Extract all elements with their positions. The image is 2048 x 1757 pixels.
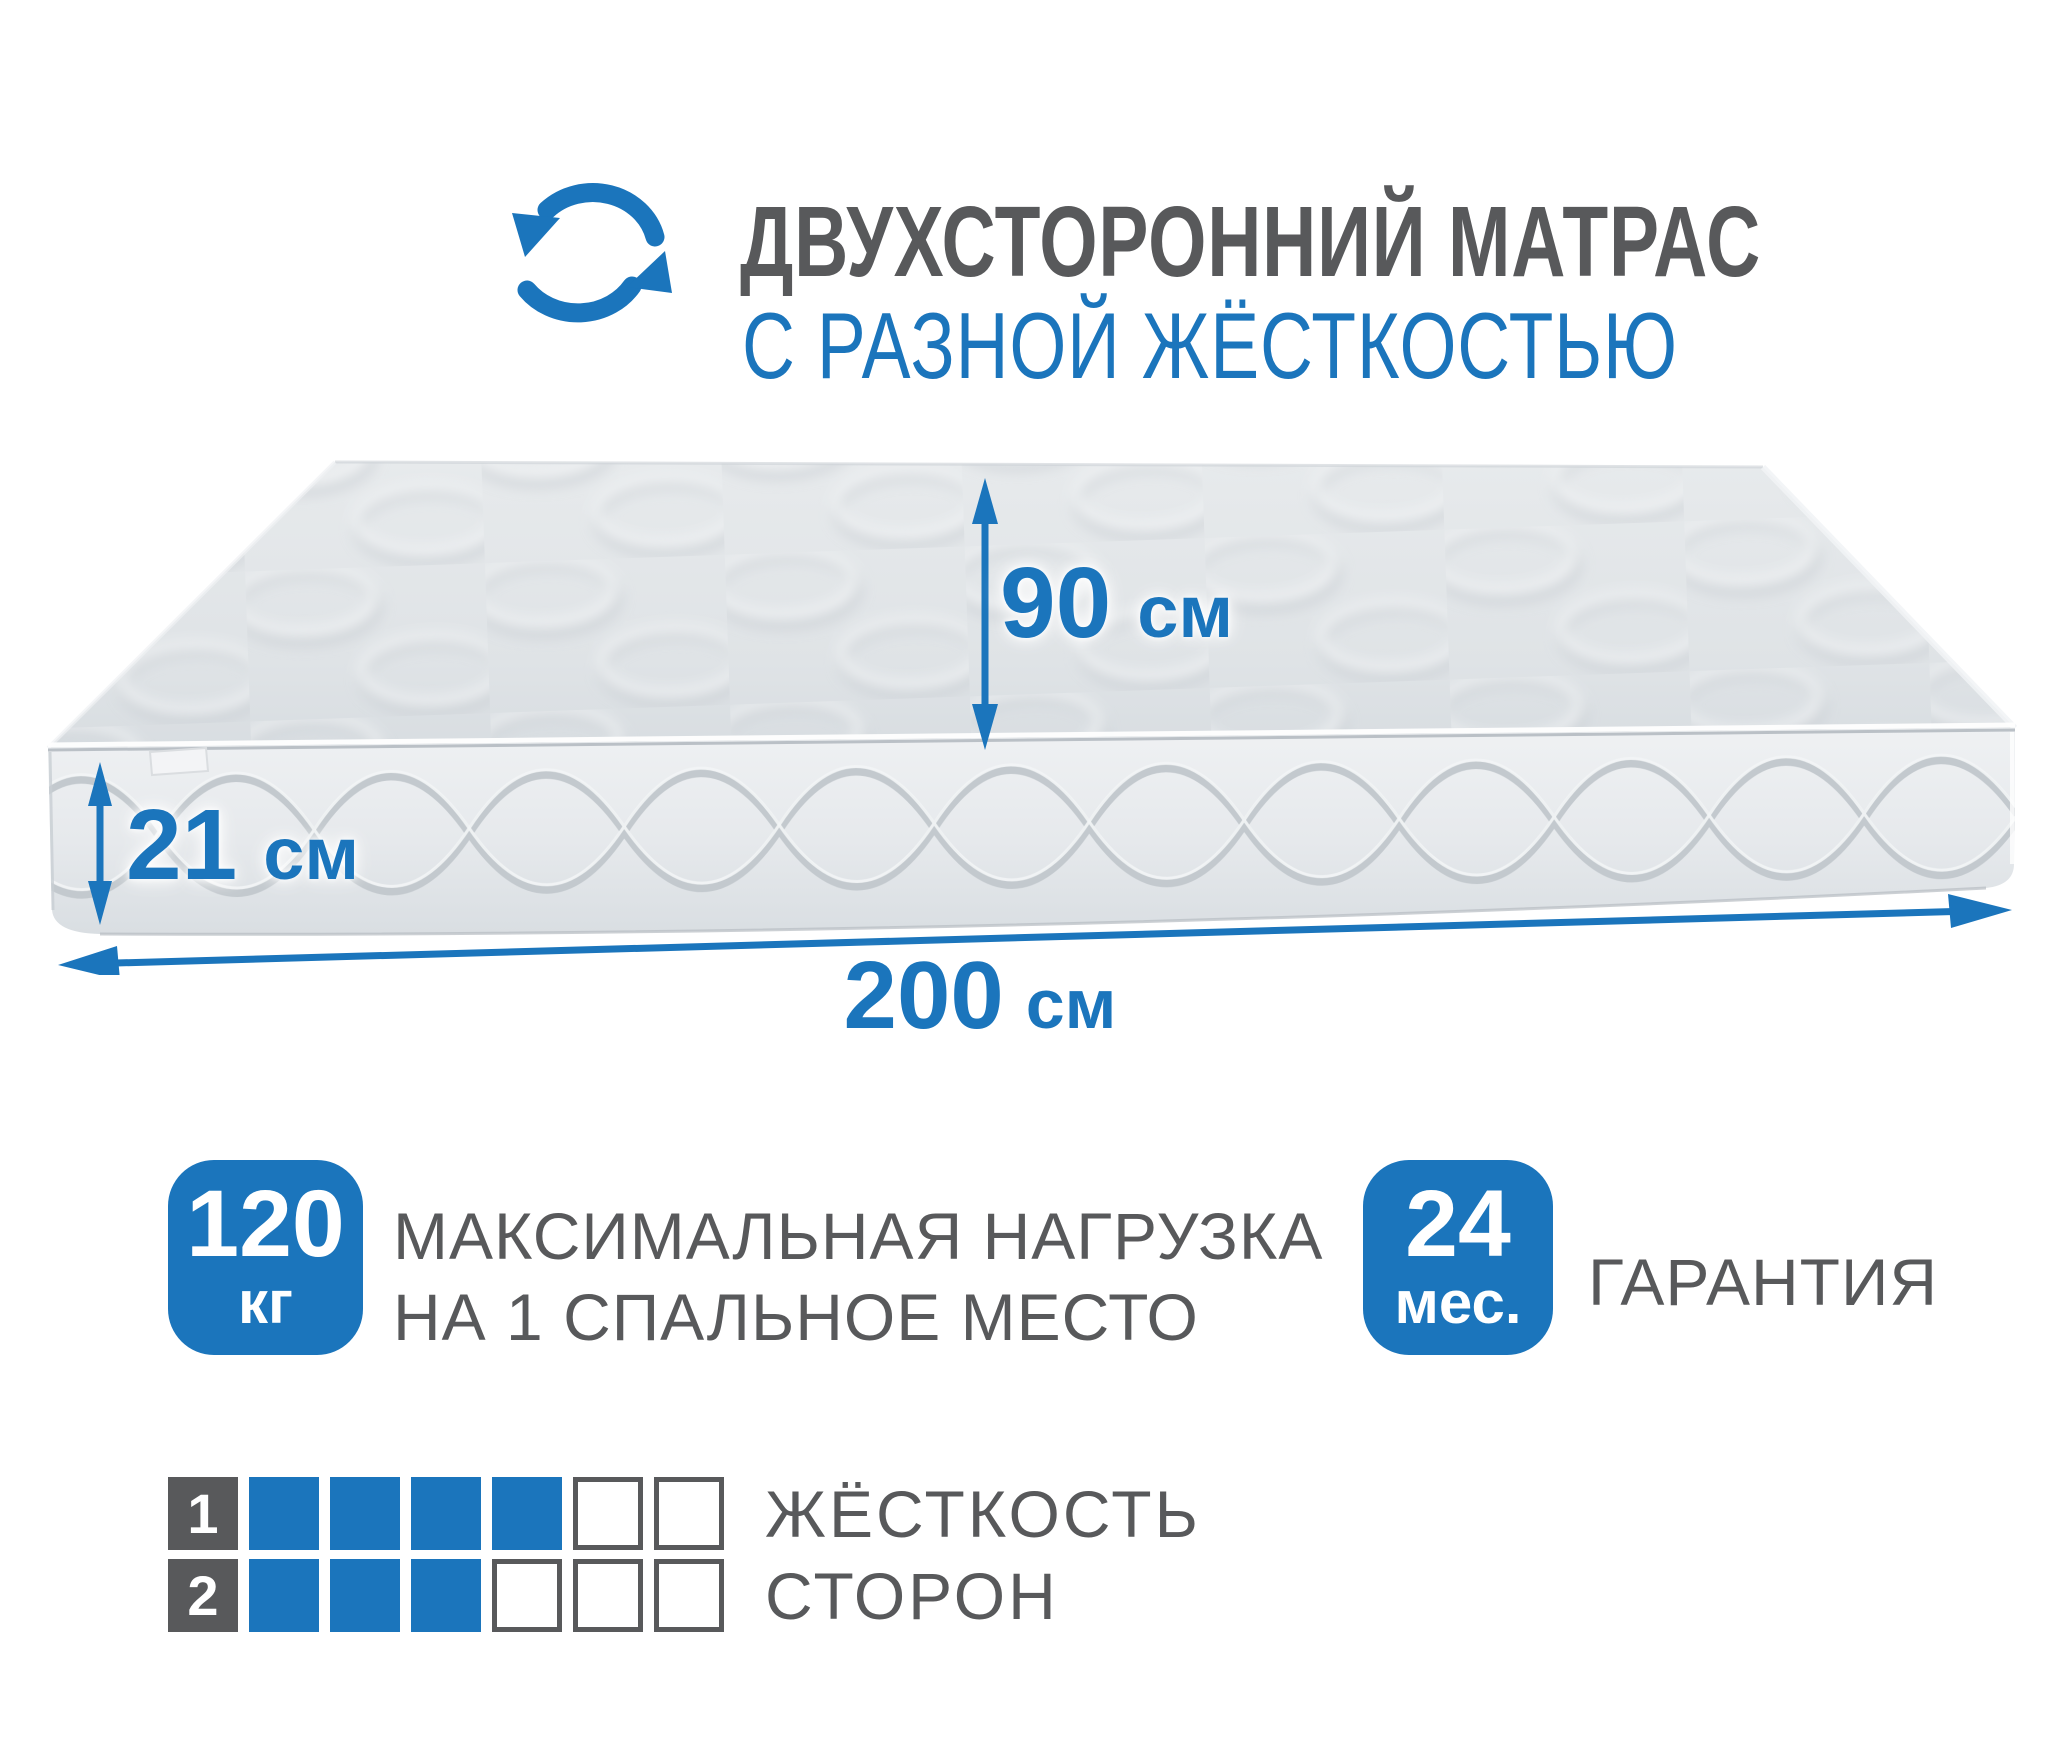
firmness-grid: 12 — [168, 1477, 724, 1641]
max-load-unit: кг — [238, 1270, 293, 1336]
dimension-width-value: 90 — [1000, 547, 1111, 659]
mattress-infographic: ДВУХСТОРОННИЙ МАТРАС С РАЗНОЙ ЖЁСТКОСТЬЮ — [0, 0, 2048, 1757]
max-load-caption-line2: НА 1 СПАЛЬНОЕ МЕСТО — [393, 1277, 1323, 1358]
firmness-cell-empty — [573, 1559, 643, 1632]
firmness-side-number: 1 — [168, 1477, 238, 1550]
firmness-cell-filled — [330, 1477, 400, 1550]
firmness-cell-empty — [492, 1559, 562, 1632]
max-load-badge: 120 кг — [168, 1160, 363, 1355]
firmness-cell-filled — [249, 1477, 319, 1550]
firmness-row-side-1: 1 — [168, 1477, 724, 1550]
dimension-length-value: 200 — [844, 942, 1004, 1049]
mattress-tag — [150, 748, 208, 775]
firmness-title-line1: ЖЁСТКОСТЬ — [765, 1477, 1201, 1550]
dimension-height-unit: см — [263, 812, 359, 895]
dimension-height-value: 21 — [126, 789, 237, 901]
firmness-cell-filled — [492, 1477, 562, 1550]
warranty-badge: 24 мес. — [1363, 1160, 1553, 1355]
max-load-value: 120 — [186, 1179, 345, 1269]
firmness-cell-filled — [330, 1559, 400, 1632]
firmness-cell-empty — [654, 1477, 724, 1550]
firmness-cell-empty — [654, 1559, 724, 1632]
warranty-caption: ГАРАНТИЯ — [1588, 1247, 1938, 1317]
dimension-width-label: 90см — [1000, 553, 1233, 653]
max-load-caption: МАКСИМАЛЬНАЯ НАГРУЗКА НА 1 СПАЛЬНОЕ МЕСТ… — [393, 1196, 1323, 1358]
firmness-cell-filled — [411, 1477, 481, 1550]
firmness-cell-filled — [249, 1559, 319, 1632]
rotate-arrows-icon — [505, 180, 675, 330]
dimension-height-label: 21см — [126, 795, 359, 895]
firmness-cell-filled — [411, 1559, 481, 1632]
page-title: ДВУХСТОРОННИЙ МАТРАС — [740, 192, 1761, 292]
firmness-side-number: 2 — [168, 1559, 238, 1632]
max-load-caption-line1: МАКСИМАЛЬНАЯ НАГРУЗКА — [393, 1196, 1323, 1277]
warranty-value: 24 — [1405, 1179, 1511, 1269]
firmness-title-line2: СТОРОН — [765, 1559, 1059, 1632]
page-subtitle: С РАЗНОЙ ЖЁСТКОСТЬЮ — [742, 299, 1678, 393]
warranty-unit: мес. — [1394, 1270, 1521, 1336]
dimension-length-unit: см — [1026, 965, 1117, 1043]
firmness-cell-empty — [573, 1477, 643, 1550]
firmness-row-side-2: 2 — [168, 1559, 724, 1632]
dimension-length-label: 200см — [780, 948, 1180, 1044]
dimension-width-unit: см — [1137, 570, 1233, 653]
